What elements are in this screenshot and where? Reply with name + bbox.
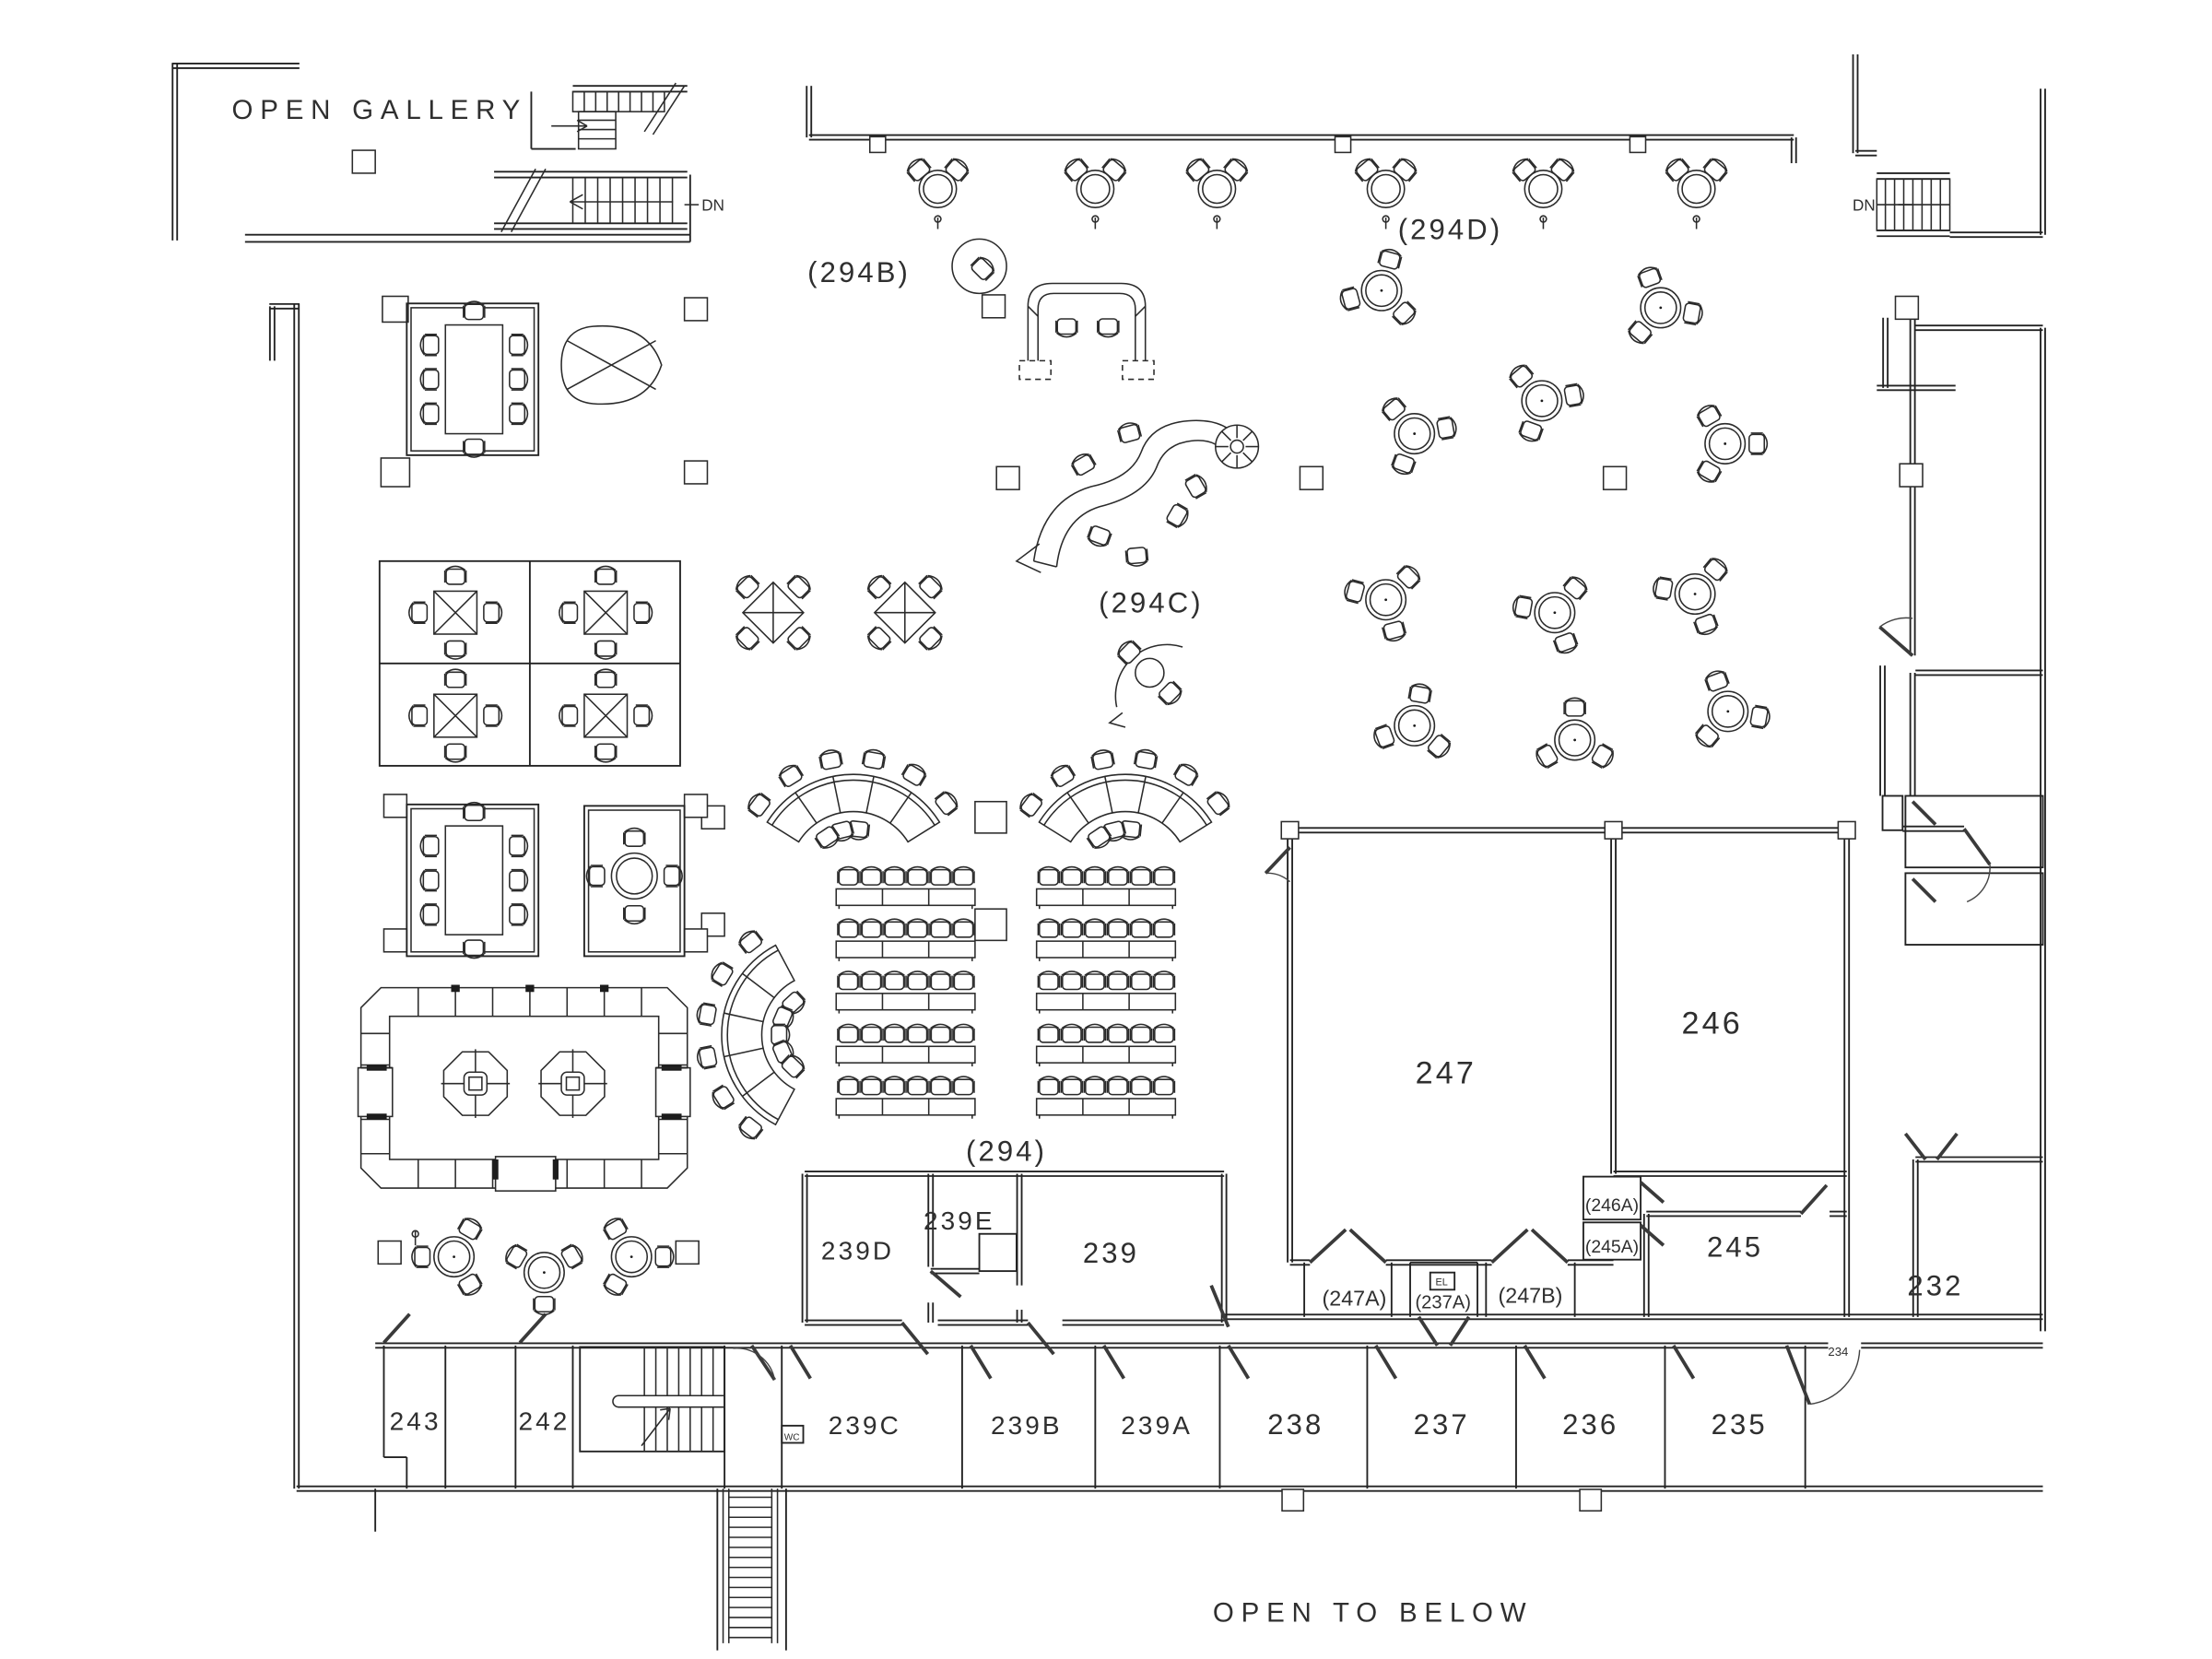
chair <box>1683 301 1704 325</box>
stair-gallery-dn <box>494 169 699 231</box>
chair <box>1130 1077 1151 1095</box>
room-label-239a: 239A <box>1121 1411 1193 1440</box>
chair <box>1564 698 1585 716</box>
chair <box>484 705 502 726</box>
chair <box>838 1024 859 1042</box>
column <box>982 295 1006 318</box>
chair <box>696 1002 717 1026</box>
chair <box>464 803 485 821</box>
chair <box>420 904 439 925</box>
chair <box>420 403 439 424</box>
octagon-planter-table <box>538 1049 607 1118</box>
chair <box>786 572 814 600</box>
chair <box>595 566 617 584</box>
chair <box>595 669 617 688</box>
chair <box>1652 576 1673 600</box>
round-table-3-seats <box>1507 361 1585 443</box>
chair <box>1061 1077 1082 1095</box>
column <box>383 929 406 952</box>
room-label-237: 237 <box>1414 1408 1470 1441</box>
chair <box>865 572 892 600</box>
square-table-4-seats <box>559 669 653 762</box>
curved-desk-row <box>745 748 960 852</box>
chair <box>1017 791 1043 818</box>
chair <box>907 1077 928 1095</box>
round-table-3-seats <box>1626 265 1704 347</box>
chair <box>1553 631 1579 655</box>
chair <box>1371 724 1395 750</box>
round-table-3-seats <box>1533 698 1617 770</box>
oval-lounge-table <box>561 326 662 405</box>
chair <box>1107 971 1128 990</box>
column <box>1838 821 1855 839</box>
stair-lower-left <box>580 1347 724 1451</box>
column <box>996 466 1019 489</box>
round-table-3-seats <box>502 1242 586 1314</box>
chair <box>1117 421 1142 444</box>
round-table-2-seats <box>1510 156 1577 229</box>
column <box>1580 1489 1601 1511</box>
cubicle-quad <box>380 561 680 766</box>
chair <box>1090 748 1114 771</box>
chair <box>953 1077 974 1095</box>
column <box>1281 821 1299 839</box>
round-table-3-seats <box>601 1215 673 1299</box>
round-table-2-seats <box>904 156 971 229</box>
chair <box>838 971 859 990</box>
chair <box>510 335 528 356</box>
chair <box>420 335 439 356</box>
chair <box>917 572 945 600</box>
chair <box>736 927 764 955</box>
floor-plan-drawing: OPEN GALLERY DN DN (294B) (294D) (294C) … <box>0 0 2212 1659</box>
chair <box>510 870 528 891</box>
chair <box>884 919 905 937</box>
chair <box>733 572 760 600</box>
room-label-el: EL <box>1436 1277 1448 1288</box>
chair <box>420 870 439 891</box>
round-table-2-seats <box>1062 156 1129 229</box>
training-desk-row <box>836 919 975 961</box>
chair <box>861 1077 882 1095</box>
chair <box>884 1024 905 1042</box>
chair <box>907 919 928 937</box>
column <box>1604 466 1627 489</box>
chair <box>510 904 528 925</box>
octagon-planter-table <box>441 1049 511 1118</box>
round-table-3-seats <box>412 1215 484 1299</box>
room-label-234: 234 <box>1828 1345 1848 1359</box>
column <box>1282 1489 1303 1511</box>
training-desk-row <box>836 971 975 1014</box>
chair <box>1512 594 1533 618</box>
two-seat-pod <box>1110 638 1184 727</box>
chair <box>464 940 485 959</box>
serpentine-counter <box>1017 420 1258 572</box>
room-label-242: 242 <box>518 1407 570 1436</box>
chair <box>1084 1024 1105 1042</box>
area-294d-label: (294D) <box>1398 213 1503 245</box>
chair <box>1038 1077 1059 1095</box>
chair <box>777 762 805 789</box>
chair <box>559 705 578 726</box>
chair <box>1061 1024 1082 1042</box>
chair <box>1165 502 1191 530</box>
chair <box>838 1077 859 1095</box>
chair <box>1390 453 1416 477</box>
chair <box>1114 638 1142 665</box>
chair <box>884 971 905 990</box>
round-table-2-seats <box>1663 156 1730 229</box>
chair <box>1750 705 1771 729</box>
chair <box>624 829 645 847</box>
furniture-layer <box>359 156 1771 1315</box>
chair <box>1056 319 1077 337</box>
chair <box>786 625 814 653</box>
chair <box>1153 867 1174 886</box>
chair <box>934 789 961 817</box>
chair <box>655 1246 674 1267</box>
square-table-4-seats <box>409 566 502 659</box>
training-desk-row <box>1037 867 1176 910</box>
chair <box>1038 867 1059 886</box>
chair <box>510 403 528 424</box>
square-table-4-seats <box>840 547 971 678</box>
stair-dn-right-label: DN <box>1853 196 1876 214</box>
stair-dn-left-label: DN <box>701 196 724 214</box>
room-label-238: 238 <box>1267 1408 1324 1441</box>
round-table-2-seats <box>1183 156 1251 229</box>
chair <box>861 1024 882 1042</box>
chair <box>1038 919 1059 937</box>
chair <box>1098 319 1119 337</box>
chair <box>1134 748 1158 770</box>
chair <box>1517 419 1543 443</box>
chair <box>1038 971 1059 990</box>
chair <box>534 1297 555 1315</box>
training-desk-row <box>836 1024 975 1066</box>
chair <box>1069 451 1097 477</box>
column <box>383 794 406 818</box>
chair <box>736 1115 764 1143</box>
chair <box>884 1077 905 1095</box>
stair-upper-left <box>531 83 687 148</box>
chair <box>1107 867 1128 886</box>
chair <box>930 971 951 990</box>
chair <box>930 1024 951 1042</box>
column <box>1300 466 1323 489</box>
chair <box>624 906 645 924</box>
chair <box>865 625 892 653</box>
chair <box>1564 383 1585 407</box>
curved-desk-row <box>1017 748 1232 852</box>
chair <box>907 971 928 990</box>
chair <box>1382 620 1406 643</box>
round-table-3-seats <box>1693 668 1771 750</box>
room-label-236: 236 <box>1562 1408 1618 1441</box>
chair <box>412 1246 430 1267</box>
room-label-247: 247 <box>1416 1056 1477 1091</box>
chair <box>1061 867 1082 886</box>
square-table-4-seats <box>559 566 653 659</box>
round-table-3-seats <box>1338 247 1418 327</box>
chair <box>1125 547 1148 567</box>
training-desk-row <box>836 1077 975 1119</box>
column <box>870 136 886 152</box>
chair <box>930 919 951 937</box>
round-table-3-seats <box>1512 573 1590 655</box>
chair <box>861 971 882 990</box>
chair <box>1084 1077 1105 1095</box>
chair <box>595 641 617 659</box>
chair <box>595 744 617 762</box>
chair <box>1130 919 1151 937</box>
chair <box>708 960 735 988</box>
chair <box>838 919 859 937</box>
column <box>685 461 708 484</box>
chair <box>1703 668 1729 692</box>
room-label-235: 235 <box>1712 1408 1768 1441</box>
column <box>685 929 708 952</box>
chair <box>709 1084 735 1112</box>
conference-table-8-seats <box>420 301 527 457</box>
chair <box>1084 867 1105 886</box>
chair <box>884 867 905 886</box>
chair <box>634 602 653 623</box>
chair <box>409 705 428 726</box>
round-table-3-seats <box>1371 682 1453 760</box>
column <box>676 1241 699 1265</box>
chair <box>1338 287 1361 312</box>
column <box>975 909 1006 940</box>
room-label-239c: 239C <box>829 1411 901 1440</box>
column <box>382 296 408 322</box>
column <box>1605 821 1622 839</box>
round-table-3-seats <box>1343 562 1423 642</box>
chair <box>861 919 882 937</box>
chair <box>1749 433 1768 454</box>
column <box>1900 464 1923 487</box>
chair <box>445 641 466 659</box>
column <box>975 802 1006 833</box>
room-label-246: 246 <box>1682 1006 1743 1041</box>
chair <box>559 602 578 623</box>
chair <box>696 1045 718 1069</box>
conference-table-8-seats <box>420 803 527 959</box>
chair <box>1436 416 1457 440</box>
chair <box>930 867 951 886</box>
room-label-245a: (245A) <box>1585 1237 1639 1257</box>
chair <box>1061 919 1082 937</box>
training-desk-row <box>1037 1077 1176 1119</box>
chair <box>1049 762 1077 789</box>
room-label-239: 239 <box>1083 1237 1139 1269</box>
chair <box>1153 971 1174 990</box>
chair <box>445 669 466 688</box>
chair <box>917 625 945 653</box>
chair <box>409 602 428 623</box>
chair <box>1086 524 1112 548</box>
chair <box>586 865 605 887</box>
column <box>1335 136 1350 152</box>
room-label-239d: 239D <box>821 1237 894 1265</box>
chair <box>1378 247 1403 270</box>
chair <box>1061 971 1082 990</box>
open-to-below-label: OPEN TO BELOW <box>1213 1598 1533 1629</box>
chair <box>907 1024 928 1042</box>
room-label-243: 243 <box>390 1407 441 1436</box>
column <box>1896 296 1919 319</box>
column <box>685 298 708 321</box>
column <box>378 1241 401 1265</box>
chair <box>861 867 882 886</box>
training-desk-row <box>1037 919 1176 961</box>
chair <box>953 867 974 886</box>
round-table-4-seats <box>586 829 682 924</box>
chair <box>464 439 485 457</box>
round-table-3-seats <box>1380 394 1458 477</box>
round-table-3-seats <box>1695 402 1767 486</box>
chair <box>634 705 653 726</box>
chair <box>1153 1024 1174 1042</box>
room-label-247a: (247A) <box>1323 1286 1387 1310</box>
training-desk-row <box>1037 1024 1176 1066</box>
chair <box>1107 1024 1128 1042</box>
stair-down-to-below <box>724 1488 778 1643</box>
chair <box>1408 682 1432 703</box>
chair <box>1206 789 1233 817</box>
chair <box>838 867 859 886</box>
room-label-239b: 239B <box>991 1411 1063 1440</box>
room-label-245: 245 <box>1707 1231 1763 1264</box>
area-294-label: (294) <box>966 1135 1047 1168</box>
room-label-wc: WC <box>784 1432 800 1442</box>
square-table-4-seats <box>409 669 502 762</box>
curved-desk-row <box>696 927 808 1142</box>
area-294c-label: (294C) <box>1099 587 1204 619</box>
chair <box>665 865 683 887</box>
room-label-237a: (237A) <box>1415 1292 1471 1312</box>
chair <box>1107 1077 1128 1095</box>
room-label-232: 232 <box>1907 1270 1963 1302</box>
chair <box>420 369 439 390</box>
chair <box>510 369 528 390</box>
column <box>1630 136 1645 152</box>
training-desk-row <box>836 867 975 910</box>
room-label-246a: (246A) <box>1585 1195 1639 1216</box>
training-desk-row <box>1037 971 1176 1014</box>
chair <box>900 761 928 788</box>
chair <box>1636 265 1662 288</box>
chair <box>445 744 466 762</box>
chair <box>818 748 842 771</box>
chair <box>953 971 974 990</box>
room-label-247b: (247B) <box>1499 1283 1563 1307</box>
chair <box>1153 1077 1174 1095</box>
area-294b-label: (294B) <box>807 256 911 288</box>
chair <box>1693 613 1719 637</box>
chair <box>907 867 928 886</box>
square-table-4-seats <box>708 547 839 678</box>
chair <box>1084 919 1105 937</box>
column <box>352 150 375 173</box>
chair <box>953 1024 974 1042</box>
chair <box>1130 867 1151 886</box>
chair <box>510 835 528 856</box>
column <box>685 794 708 818</box>
chair <box>1130 971 1151 990</box>
chair <box>1157 680 1184 708</box>
column <box>381 458 409 487</box>
chair <box>1038 1024 1059 1042</box>
chair <box>1107 919 1128 937</box>
banquette-ring <box>359 985 690 1192</box>
chair <box>1130 1024 1151 1042</box>
chair <box>464 301 485 320</box>
chair <box>420 835 439 856</box>
chair <box>930 1077 951 1095</box>
chair <box>1183 472 1209 500</box>
chair <box>953 919 974 937</box>
room-label-239e: 239E <box>924 1206 995 1235</box>
chair <box>1343 579 1366 604</box>
chair <box>862 748 886 770</box>
chair <box>1153 919 1174 937</box>
chair <box>733 625 760 653</box>
open-gallery-label: OPEN GALLERY <box>232 95 528 125</box>
round-table-3-seats <box>1652 555 1730 637</box>
chair <box>484 602 502 623</box>
chair <box>1173 761 1201 788</box>
chair <box>745 791 771 818</box>
stair-upper-right-dn <box>1877 173 1949 236</box>
chair <box>445 566 466 584</box>
chair <box>1084 971 1105 990</box>
